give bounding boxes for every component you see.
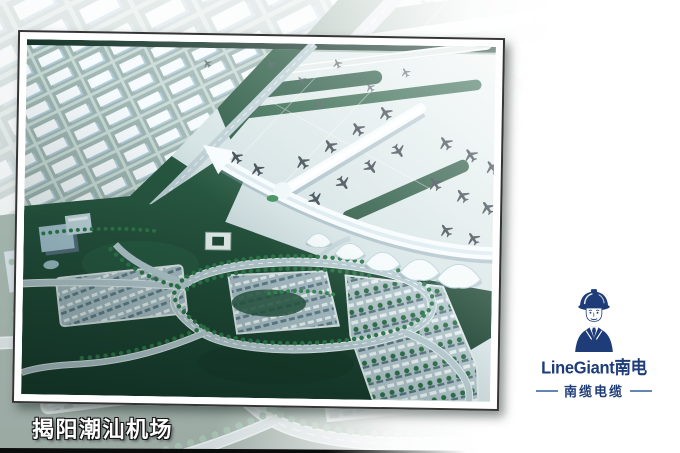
promo-banner: LineGiant南电 南缆电缆 揭阳潮汕机场: [0, 0, 680, 453]
logo-brand-text: LineGiant南电: [520, 353, 668, 379]
airport-aerial-photo: [21, 39, 496, 402]
photo-caption: 揭阳潮汕机场: [32, 412, 173, 444]
tagline-rule-left: [536, 390, 558, 392]
construction-worker-icon: [570, 286, 618, 352]
airport-photo-frame: [12, 30, 505, 411]
logo-tagline-row: 南缆电缆: [520, 381, 668, 400]
logo-tagline-text: 南缆电缆: [564, 381, 624, 400]
tagline-rule-right: [630, 390, 652, 392]
linegiant-logo: LineGiant南电 南缆电缆: [520, 286, 668, 400]
